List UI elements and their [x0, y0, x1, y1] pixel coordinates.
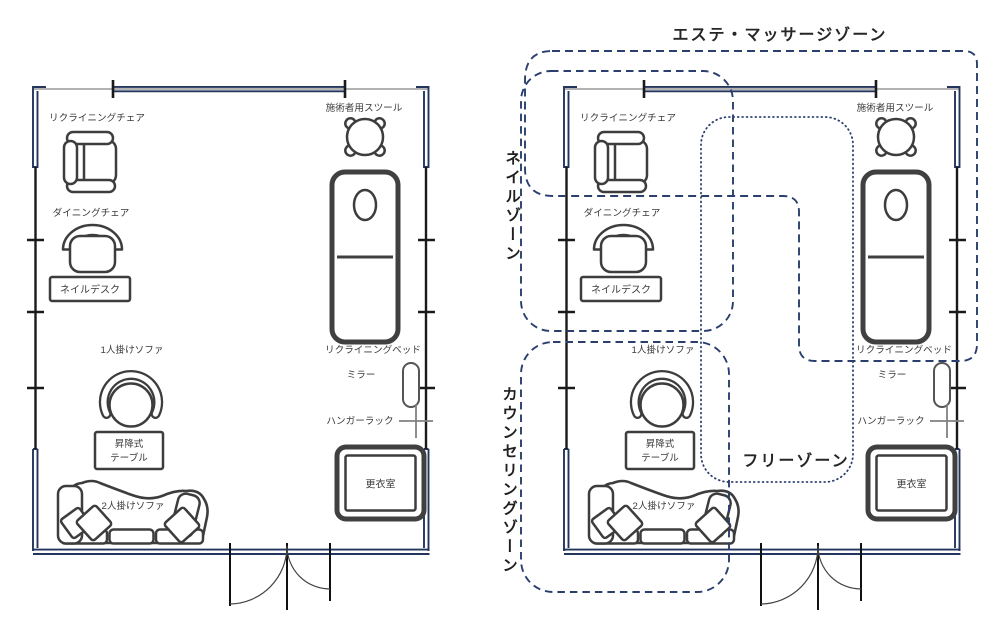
dining-chair-label: ダイニングチェア	[53, 207, 130, 219]
floor-plan-canvas: リクライニングチェア 施術者用スツール ダイニングチェア ネイルデスク 1人掛け…	[0, 0, 1000, 620]
zone-nail-label: ネイルゾーン	[500, 150, 522, 264]
recliner-chair-icon	[64, 132, 116, 192]
corner-bottom-left	[33, 449, 38, 551]
dining-chair-icon	[63, 225, 122, 272]
recliner-bed-label: リクライニングベッド	[325, 344, 421, 356]
double-sofa-icon	[58, 481, 208, 544]
recliner-bed-icon	[332, 172, 398, 342]
lift-table-label-2: テーブル	[110, 452, 148, 464]
hanger-rack-icon	[399, 404, 433, 438]
mirror-icon	[403, 363, 419, 407]
hanger-rack-label: ハンガーラック	[326, 416, 393, 427]
corner-top-right	[416, 87, 429, 167]
corner-top-left	[33, 87, 46, 167]
recliner-chair-label: リクライニングチェア	[49, 112, 145, 124]
single-sofa-label: 1人掛けソファ	[101, 344, 164, 356]
therapist-stool-label: 施術者用スツール	[326, 102, 403, 114]
lift-table-label-1: 昇降式	[115, 438, 144, 450]
mirror-label: ミラー	[347, 370, 376, 381]
zone-este-massage-label: エステ・マッサージゾーン	[673, 26, 888, 44]
single-sofa-icon	[104, 375, 158, 427]
changing-room-label: 更衣室	[366, 478, 396, 491]
changing-room-icon: 更衣室	[337, 447, 424, 519]
zone-free-label: フリーゾーン	[742, 452, 849, 470]
nail-desk-label: ネイルデスク	[60, 283, 120, 296]
therapist-stool-icon	[345, 118, 384, 155]
zone-free-outline	[701, 117, 853, 482]
zone-counseling-label: カウンセリングゾーン	[497, 386, 519, 576]
double-sofa-label: 2人掛けソファ	[102, 500, 165, 512]
floor-plan-right	[558, 80, 966, 610]
floor-plan-left: リクライニングチェア 施術者用スツール ダイニングチェア ネイルデスク 1人掛け…	[27, 80, 435, 610]
